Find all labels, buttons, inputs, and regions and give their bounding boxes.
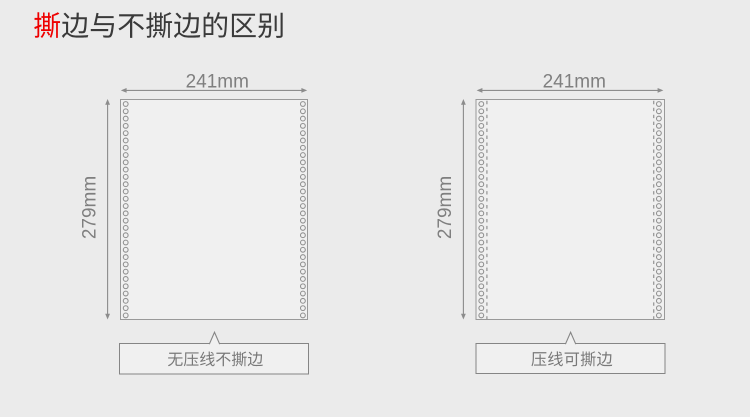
svg-text:241mm: 241mm: [186, 71, 249, 92]
svg-text:241mm: 241mm: [543, 71, 606, 92]
svg-text:279mm: 279mm: [435, 176, 456, 239]
svg-text:279mm: 279mm: [79, 176, 100, 239]
